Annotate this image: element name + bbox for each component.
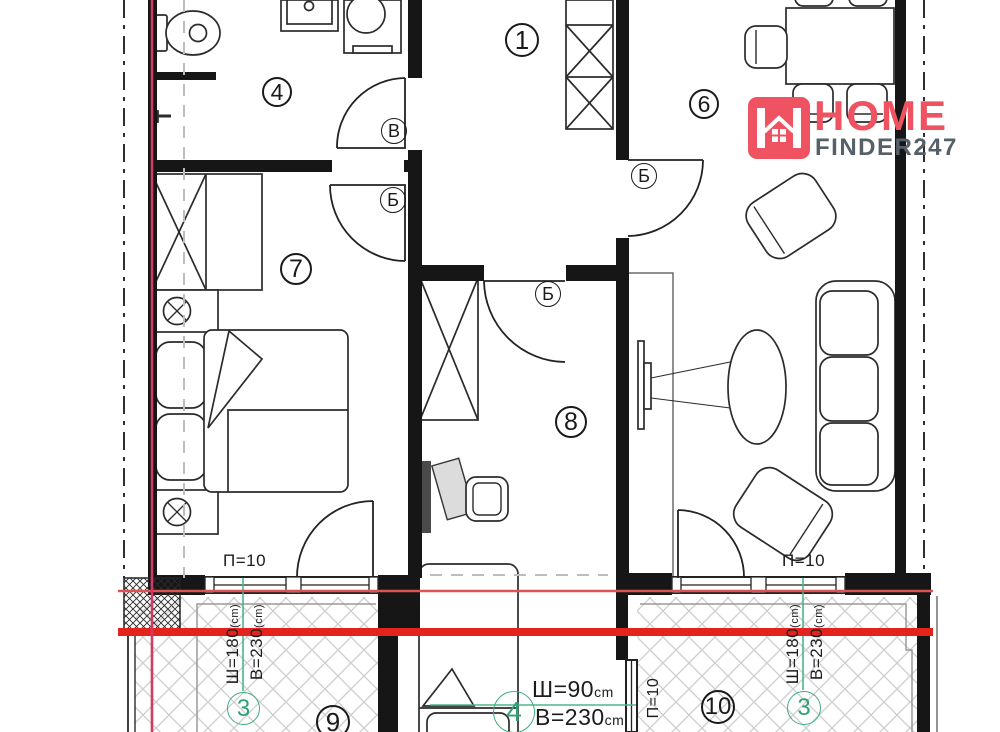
house-icon xyxy=(748,97,810,159)
unit: (cm) xyxy=(813,604,825,628)
right-window-width: Ш=180(cm) xyxy=(783,596,803,692)
window-type-left: 3 xyxy=(227,692,260,725)
room-label-living: 6 xyxy=(689,89,719,119)
door-type-marker: 4 xyxy=(493,691,535,732)
dining-table xyxy=(786,8,894,84)
window-type-right: 3 xyxy=(787,691,821,725)
room-label-bathroom: 4 xyxy=(262,77,292,107)
door-label-living: Б xyxy=(631,163,657,189)
value: В=230 xyxy=(247,628,266,680)
value: Ш=180 xyxy=(223,628,242,684)
sink xyxy=(281,0,338,31)
parapet-label-mid: П=10 xyxy=(645,672,663,724)
room-label-bedroom: 7 xyxy=(280,253,312,285)
door-label-bathroom: В xyxy=(381,118,407,144)
unit: (cm) xyxy=(789,604,801,628)
parapet-label-right: П=10 xyxy=(782,551,825,571)
unit: cm xyxy=(605,712,625,728)
value: Ш=180 xyxy=(783,628,802,684)
hall-wardrobe xyxy=(566,0,613,129)
unit: cm xyxy=(594,684,614,700)
value: В=230 xyxy=(535,704,605,730)
logo-badge xyxy=(748,97,810,159)
unit: (cm) xyxy=(253,604,265,628)
room-label-balcony-right: 10 xyxy=(701,690,735,724)
left-window-height: В=230(cm) xyxy=(247,594,267,690)
logo-text-home: HOME xyxy=(814,92,948,140)
balcony-door-width: Ш=90cm xyxy=(532,676,614,703)
door-label-bedroom: Б xyxy=(380,187,406,213)
logo-text-finder: FINDER247 xyxy=(815,134,958,162)
coffee-table xyxy=(728,330,786,444)
unit: (cm) xyxy=(229,604,241,628)
nightstand-bottom xyxy=(154,490,218,534)
door-label-office: Б xyxy=(535,281,561,307)
right-window-height: В=230(cm) xyxy=(807,594,827,690)
door-swings xyxy=(297,78,744,578)
side-window xyxy=(626,660,637,732)
duct-niche xyxy=(628,273,673,578)
armchair-top xyxy=(740,167,842,264)
bedroom-wardrobe xyxy=(152,174,262,290)
room-label-balcony-left: 9 xyxy=(316,705,350,732)
floor-plan: 1 4 6 7 8 9 10 В Б Б Б П=10 П=10 П=10 Ш=… xyxy=(0,0,1000,732)
value: Ш=90 xyxy=(532,676,594,702)
room-label-office: 8 xyxy=(555,406,587,438)
toilet xyxy=(154,11,220,55)
room-label-hallway: 1 xyxy=(505,23,539,57)
nightstand-top xyxy=(154,290,218,332)
balcony-door-height: В=230cm xyxy=(535,704,624,731)
washing-machine xyxy=(344,0,401,53)
sofa xyxy=(816,281,895,491)
office-chair xyxy=(466,477,508,521)
office-wardrobe xyxy=(420,278,478,420)
parapet-label-left: П=10 xyxy=(223,551,266,571)
value: В=230 xyxy=(807,628,826,680)
left-window-width: Ш=180(cm) xyxy=(223,596,243,692)
